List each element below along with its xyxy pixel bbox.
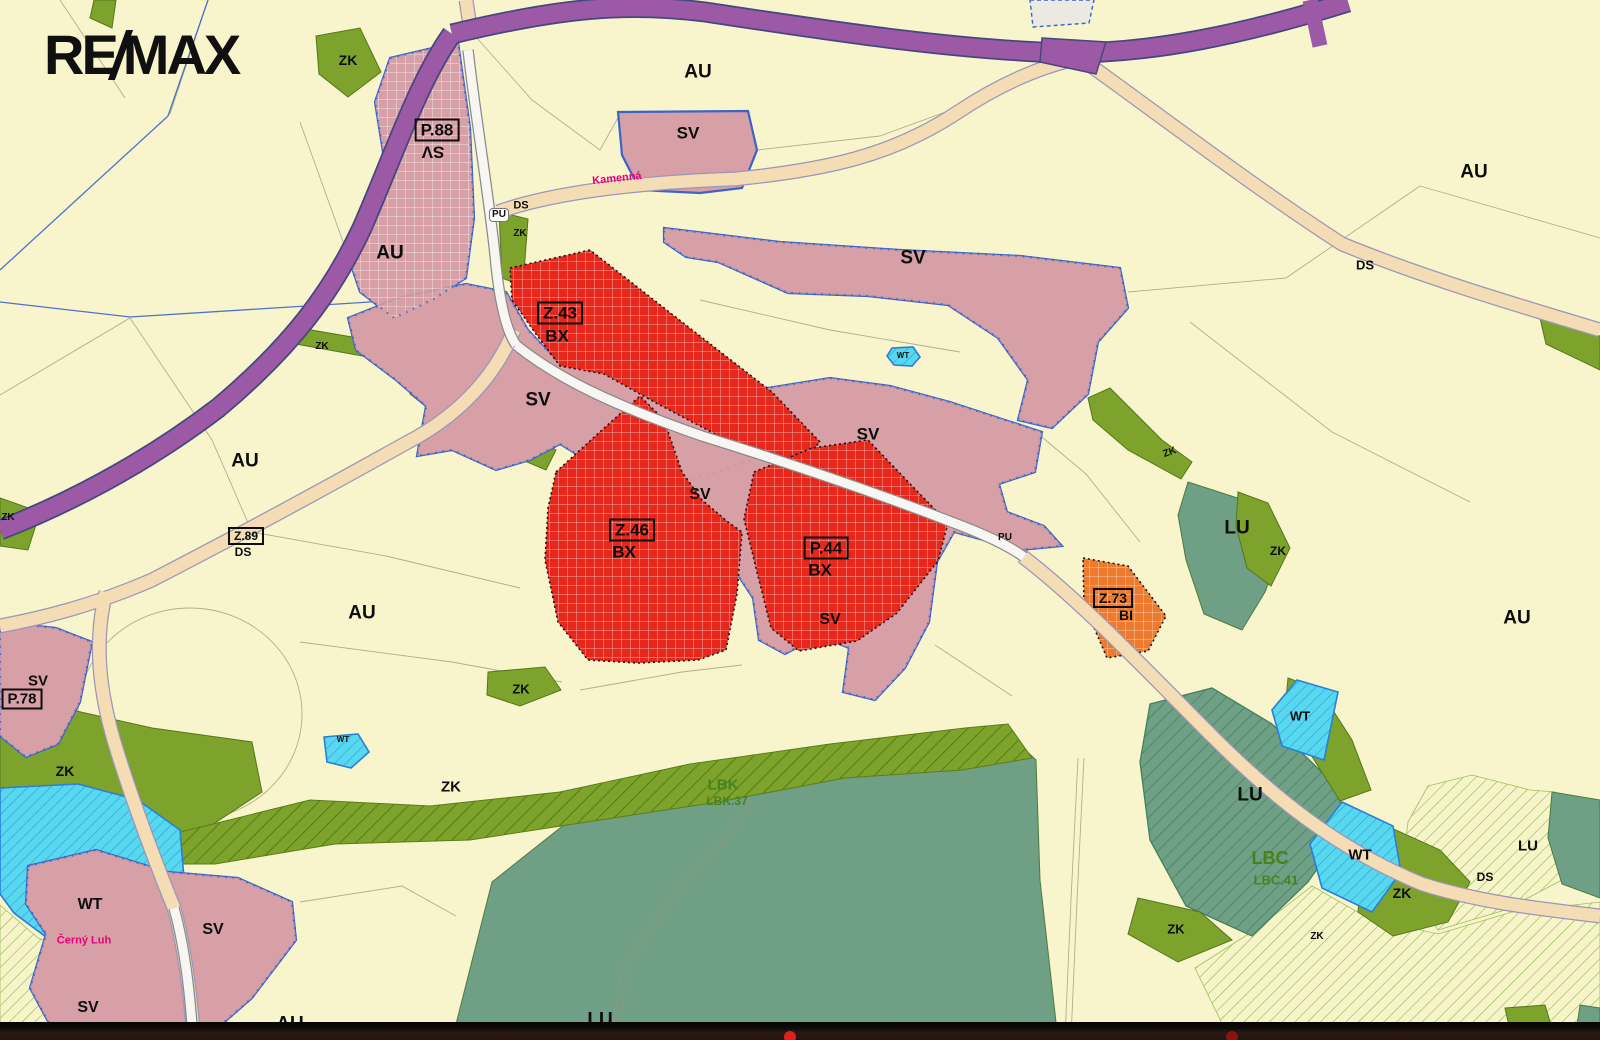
zone-label-au: AU [684, 63, 711, 82]
zone-label-lu: LU [1518, 839, 1538, 854]
zone-label-sv: SV [525, 391, 550, 410]
zone-label-zk: ZK [1310, 932, 1323, 942]
zone-label-zk: ZK [1270, 545, 1286, 557]
zone-label-au: AU [231, 452, 258, 471]
zone-label-wt: WT [1348, 848, 1371, 863]
zone-label-zk: ZK [441, 780, 461, 795]
zone-label-zk: ZK [1162, 446, 1178, 460]
zone-label-sv: SV [202, 922, 223, 938]
zone-label-sv: SV [77, 1000, 98, 1016]
boxed-sublabel-ds: DS [235, 546, 252, 558]
boxed-sublabel-bi: BI [1119, 608, 1133, 622]
zone-label-zk: ZK [1393, 886, 1412, 900]
zone-label-lu: LU [1237, 786, 1262, 805]
zone-label-zk: ZK [1, 513, 14, 523]
zone-label-zk: ZK [512, 683, 529, 696]
boxed-sublabel-sv: SV [28, 674, 48, 689]
zone-label-lu: LU [1224, 519, 1249, 538]
zone-label-sv: SV [677, 125, 700, 142]
zone-label-ds: DS [513, 201, 528, 212]
zone-label-zk: ZK [315, 342, 328, 352]
zone-label-wt: WT [1290, 710, 1310, 723]
zone-label-lbk: LBK [708, 778, 739, 793]
boxed-label-p-44: P.44 [804, 537, 849, 560]
bottom-bar [0, 1022, 1600, 1040]
boxed-label-z-43: Z.43 [537, 302, 583, 325]
map-labels-layer: ZKAUAUSVDSPUZKAUSVDSZKWTSVSVZKAUSVZKLUPU… [0, 0, 1600, 1040]
zone-label-au: AU [1503, 609, 1530, 628]
remax-logo-max: MAX [123, 22, 238, 87]
boxed-sublabel-bx: BX [545, 328, 569, 345]
zone-label-zk: ZK [1167, 923, 1184, 936]
red-dot-icon [784, 1031, 796, 1040]
zone-label-pu: PU [489, 208, 509, 222]
zone-label-lbc-41: LBC.41 [1254, 874, 1299, 887]
zone-label-pu: PU [998, 533, 1012, 543]
red-dot-dim-icon [1226, 1031, 1238, 1040]
zone-label-lbc: LBC [1252, 849, 1289, 867]
zone-label-lbk-37: LBK.37 [706, 795, 747, 807]
boxed-sublabel-bx: BX [808, 562, 832, 579]
boxed-label-p-88: P.88 [415, 119, 460, 142]
zone-label-au: AU [348, 604, 375, 623]
boxed-label-z-73: Z.73 [1093, 588, 1133, 608]
zone-label-zk: ZK [56, 764, 75, 778]
zone-label-zk: ZK [513, 229, 526, 239]
map-canvas[interactable]: ZKAUAUSVDSPUZKAUSVDSZKWTSVSVZKAUSVZKLUPU… [0, 0, 1600, 1040]
zone-label-sv: SV [857, 426, 880, 443]
zone-label-sv: SV [689, 487, 710, 503]
boxed-sublabel-sv: SV [422, 144, 445, 161]
zone-label-ds: DS [1356, 259, 1374, 272]
zone-label-wt: WT [78, 897, 103, 913]
street-label: Kamenná [592, 171, 642, 187]
remax-logo: RE MAX [44, 22, 238, 87]
zone-label-zk: ZK [339, 53, 358, 67]
zone-label-sv: SV [900, 249, 925, 268]
zone-label-au: AU [1460, 163, 1487, 182]
zone-label-ds: DS [1477, 871, 1494, 883]
boxed-sublabel-bx: BX [612, 544, 636, 561]
zone-label-wt: WT [337, 736, 349, 744]
zone-label-au: AU [376, 244, 403, 263]
zone-label-sv: SV [819, 612, 840, 628]
boxed-label-z-89: Z.89 [228, 527, 264, 545]
zone-label-wt: WT [897, 352, 909, 360]
boxed-label-p-78: P.78 [2, 689, 43, 710]
boxed-label-z-46: Z.46 [609, 519, 655, 542]
remax-logo-re: RE [44, 22, 116, 87]
street-label: Černý Luh [57, 936, 111, 947]
